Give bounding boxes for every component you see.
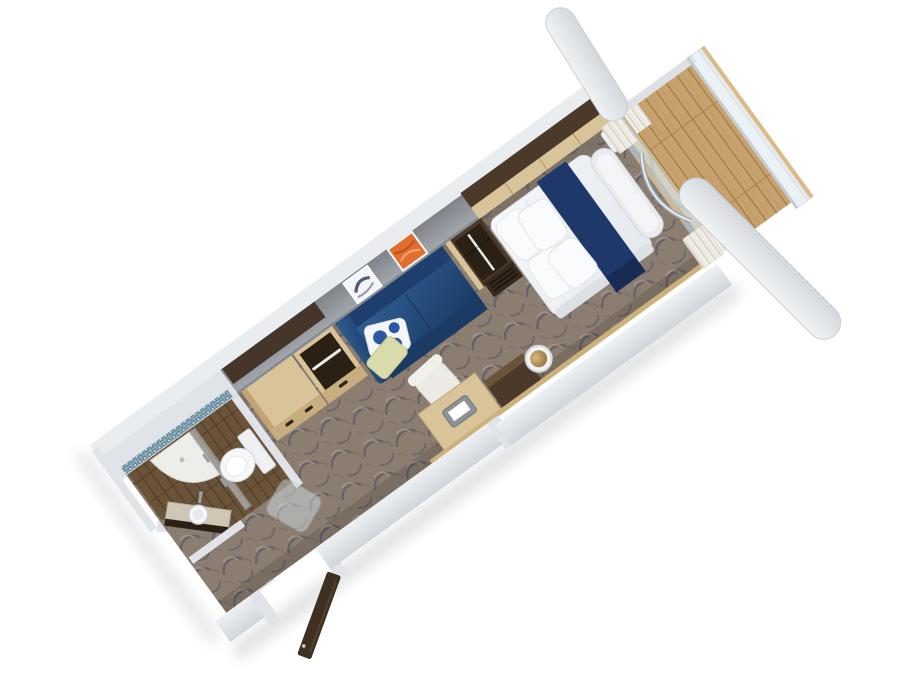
stateroom-floorplan-stage xyxy=(0,0,900,675)
stateroom-floorplan-render xyxy=(0,0,900,675)
